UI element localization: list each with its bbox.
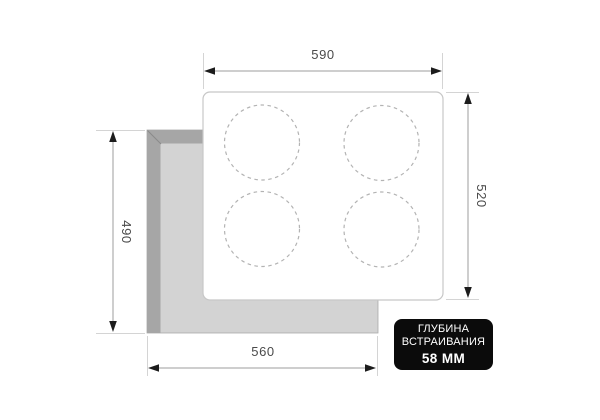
dim-label-right-height: 520 [473, 164, 489, 228]
dimension-diagram: 590 520 490 560 ГЛУБИНА ВСТРАИВАНИЯ 58 М… [0, 0, 600, 420]
dim-label-bottom-cutout-width: 560 [231, 344, 295, 360]
arrowhead-590-left [204, 67, 215, 75]
badge-line-2: ВСТРАИВАНИЯ [402, 336, 485, 350]
arrowhead-490-down [109, 321, 117, 332]
arrowhead-490-up [109, 131, 117, 142]
arrowhead-590-right [431, 67, 442, 75]
arrowhead-560-right [365, 364, 376, 372]
arrowhead-560-left [148, 364, 159, 372]
arrowhead-520-up [464, 93, 472, 104]
dim-label-left-cutout-height: 490 [118, 200, 134, 264]
badge-line-3: 58 ММ [422, 350, 465, 367]
badge-line-1: ГЛУБИНА [418, 323, 469, 337]
arrowhead-520-down [464, 287, 472, 298]
cutout-rim-left [147, 130, 161, 333]
depth-badge: ГЛУБИНА ВСТРАИВАНИЯ 58 ММ [394, 319, 493, 370]
hob-outline [203, 92, 443, 300]
dim-label-top-width: 590 [291, 47, 355, 63]
diagram-linework [0, 0, 600, 420]
